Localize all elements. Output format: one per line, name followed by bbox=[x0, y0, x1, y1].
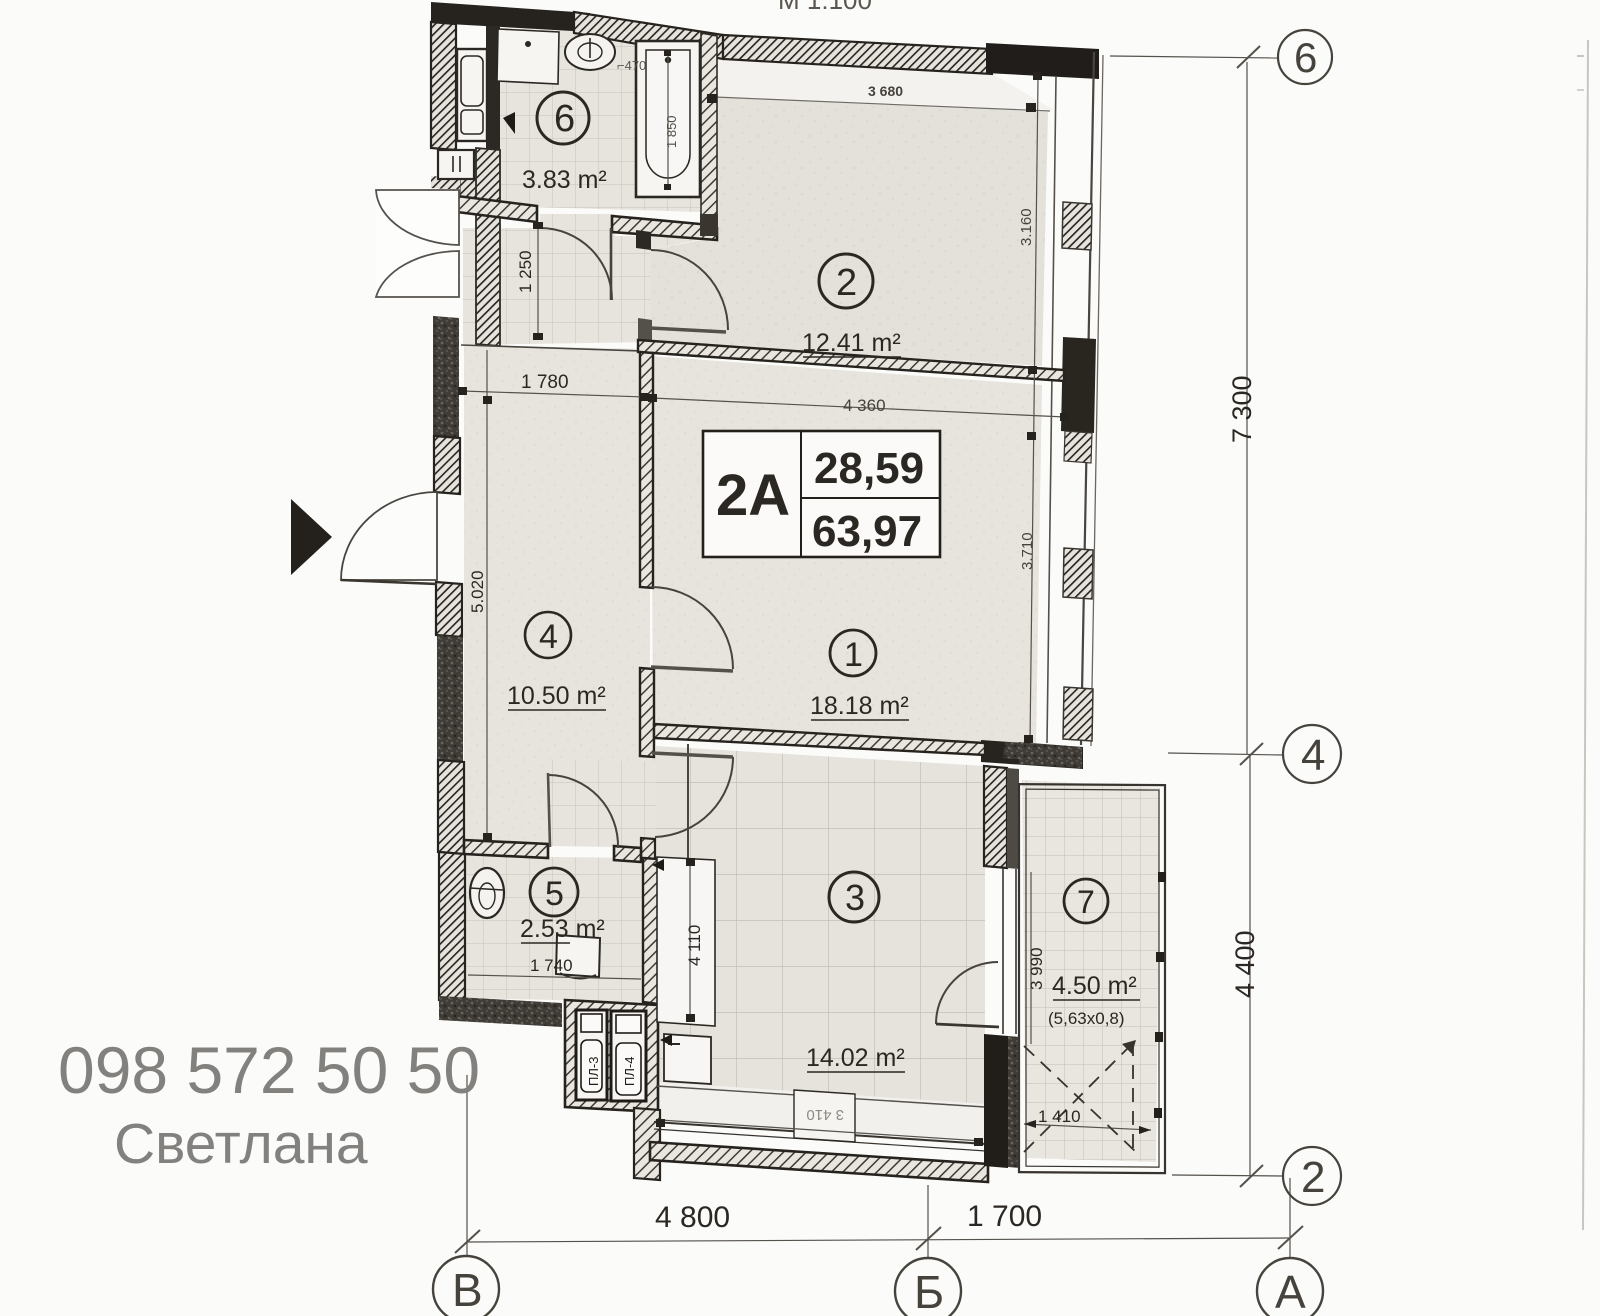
svg-text:М 1:100: М 1:100 bbox=[778, 0, 872, 15]
svg-text:4: 4 bbox=[539, 618, 558, 656]
svg-text:3 410: 3 410 bbox=[806, 1106, 844, 1123]
svg-text:6: 6 bbox=[1294, 34, 1317, 81]
svg-text:6: 6 bbox=[554, 98, 575, 140]
svg-text:3: 3 bbox=[845, 877, 865, 918]
svg-text:12.41 m²: 12.41 m² bbox=[802, 329, 901, 357]
svg-text:2: 2 bbox=[836, 262, 857, 304]
svg-text:Б: Б bbox=[914, 1266, 944, 1316]
svg-text:1 780: 1 780 bbox=[521, 372, 569, 393]
svg-text:4 800: 4 800 bbox=[655, 1201, 730, 1234]
svg-text:3.83 m²: 3.83 m² bbox=[522, 166, 607, 194]
svg-text:4 360: 4 360 bbox=[843, 396, 886, 415]
svg-text:А: А bbox=[1275, 1266, 1306, 1316]
svg-text:1 700: 1 700 bbox=[967, 1200, 1042, 1233]
svg-text:4: 4 bbox=[1301, 731, 1325, 780]
svg-text:18.18 m²: 18.18 m² bbox=[810, 692, 909, 720]
svg-text:63,97: 63,97 bbox=[812, 507, 922, 556]
svg-text:5: 5 bbox=[545, 875, 564, 913]
svg-text:5.020: 5.020 bbox=[468, 570, 487, 613]
svg-text:3.160: 3.160 bbox=[1018, 208, 1035, 246]
svg-text:4 400: 4 400 bbox=[1230, 930, 1260, 998]
svg-text:10.50 m²: 10.50 m² bbox=[507, 682, 606, 710]
svg-text:2.53 m²: 2.53 m² bbox=[520, 915, 605, 943]
svg-text:2A: 2A bbox=[716, 463, 790, 528]
svg-text:28,59: 28,59 bbox=[814, 444, 924, 493]
svg-text:ПЛ-3: ПЛ-3 bbox=[586, 1057, 601, 1086]
svg-text:098 572 50 50: 098 572 50 50 bbox=[58, 1033, 480, 1107]
svg-text:1 740: 1 740 bbox=[530, 956, 573, 975]
svg-text:3 680: 3 680 bbox=[868, 83, 903, 99]
svg-text:2: 2 bbox=[1301, 1153, 1325, 1202]
svg-text:4.50 m²: 4.50 m² bbox=[1052, 972, 1137, 1000]
svg-text:3 990: 3 990 bbox=[1027, 947, 1046, 990]
svg-text:ПЛ-4: ПЛ-4 bbox=[622, 1057, 637, 1086]
svg-text:⌐470: ⌐470 bbox=[617, 58, 646, 73]
svg-text:(5,63x0,8): (5,63x0,8) bbox=[1048, 1009, 1125, 1028]
svg-text:7: 7 bbox=[1077, 884, 1095, 920]
svg-text:14.02 m²: 14.02 m² bbox=[806, 1044, 905, 1072]
svg-text:В: В bbox=[452, 1264, 483, 1316]
svg-text:1 250: 1 250 bbox=[516, 250, 535, 293]
svg-text:1 850: 1 850 bbox=[664, 115, 679, 148]
svg-text:4 110: 4 110 bbox=[685, 925, 704, 966]
svg-text:1: 1 bbox=[844, 636, 863, 674]
svg-text:3.710: 3.710 bbox=[1019, 532, 1036, 570]
svg-text:Светлана: Светлана bbox=[114, 1112, 368, 1176]
svg-text:1 410: 1 410 bbox=[1038, 1107, 1081, 1126]
svg-text:7 300: 7 300 bbox=[1227, 375, 1257, 443]
